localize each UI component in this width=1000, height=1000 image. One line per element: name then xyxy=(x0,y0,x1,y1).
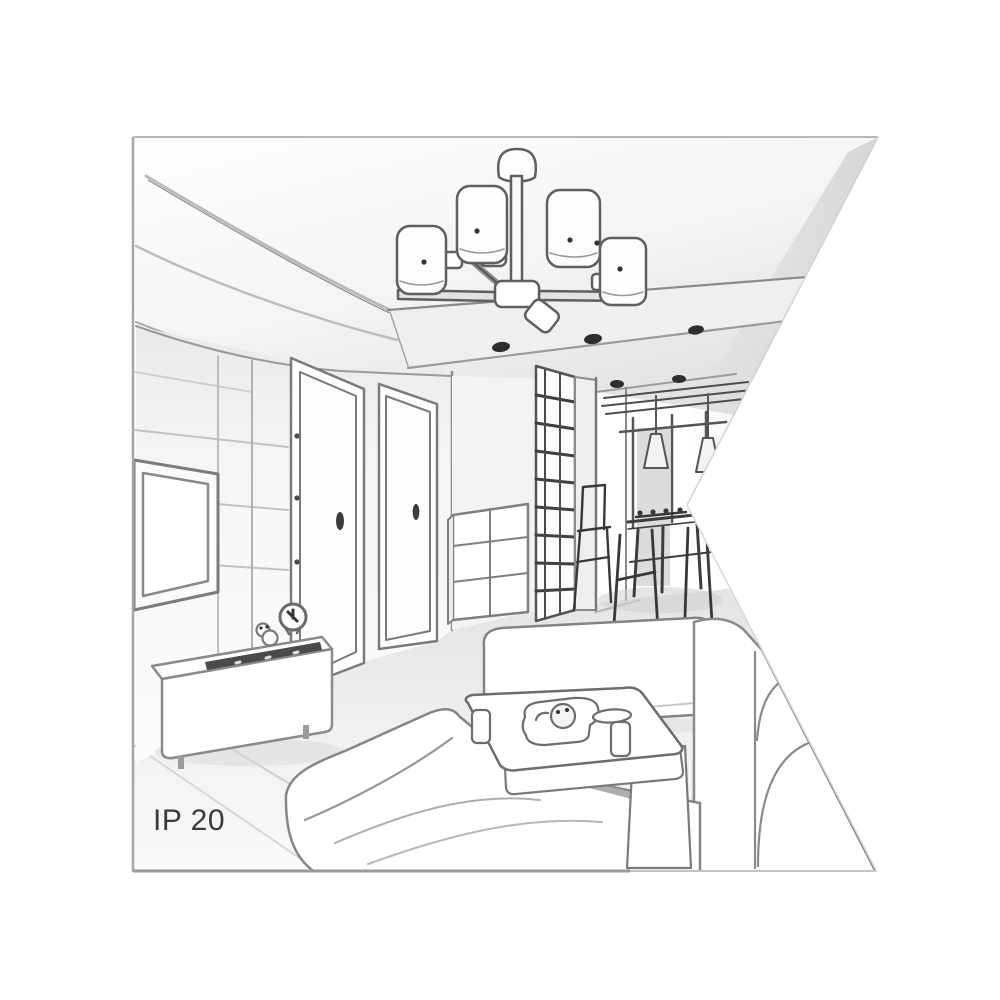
product-illustration: IP 20 xyxy=(0,0,1000,1000)
hinge-dot xyxy=(294,433,299,438)
wall-mounted-tv xyxy=(134,460,218,610)
room-illustration xyxy=(0,0,1000,1000)
interior-door-right xyxy=(379,384,437,649)
cup xyxy=(472,710,490,743)
slatted-wardrobe xyxy=(536,366,596,621)
teapot xyxy=(551,704,575,728)
hinge-dot xyxy=(294,559,299,564)
hall-downlight xyxy=(672,375,686,383)
hinge-dot xyxy=(294,495,299,500)
sideboard-leg xyxy=(303,725,309,739)
hall-downlight xyxy=(610,380,624,388)
door-handle xyxy=(336,512,344,530)
cylinder-shade xyxy=(397,226,446,294)
ip-rating-label: IP 20 xyxy=(153,804,225,838)
door-handle xyxy=(413,504,420,520)
right-sofa xyxy=(694,619,880,880)
cup xyxy=(611,722,630,756)
cylinder-shade xyxy=(457,186,507,263)
chest-of-drawers xyxy=(448,504,528,624)
sideboard-leg xyxy=(178,756,184,769)
